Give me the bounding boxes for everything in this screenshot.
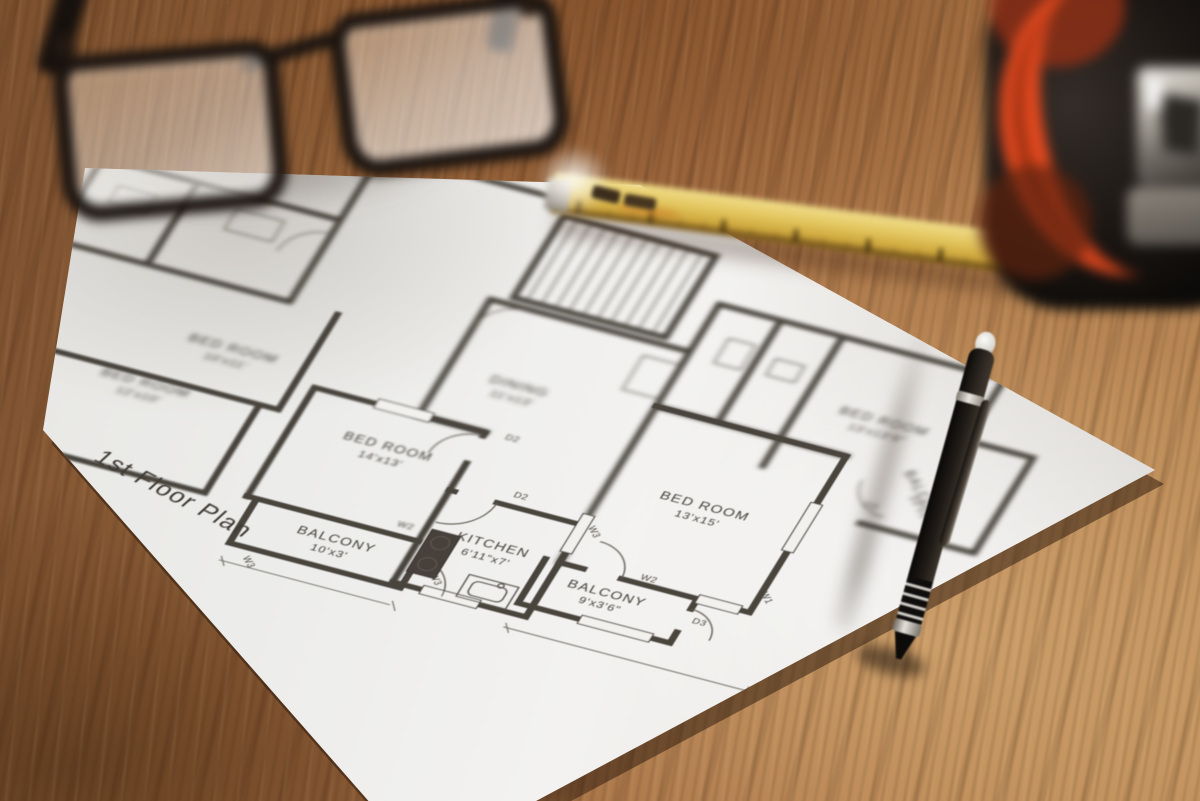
photo-scene: DINING 11'x13' BED ROOM 13'x13'6" BALCON… <box>0 0 1200 801</box>
photo-vignette <box>0 0 1200 801</box>
